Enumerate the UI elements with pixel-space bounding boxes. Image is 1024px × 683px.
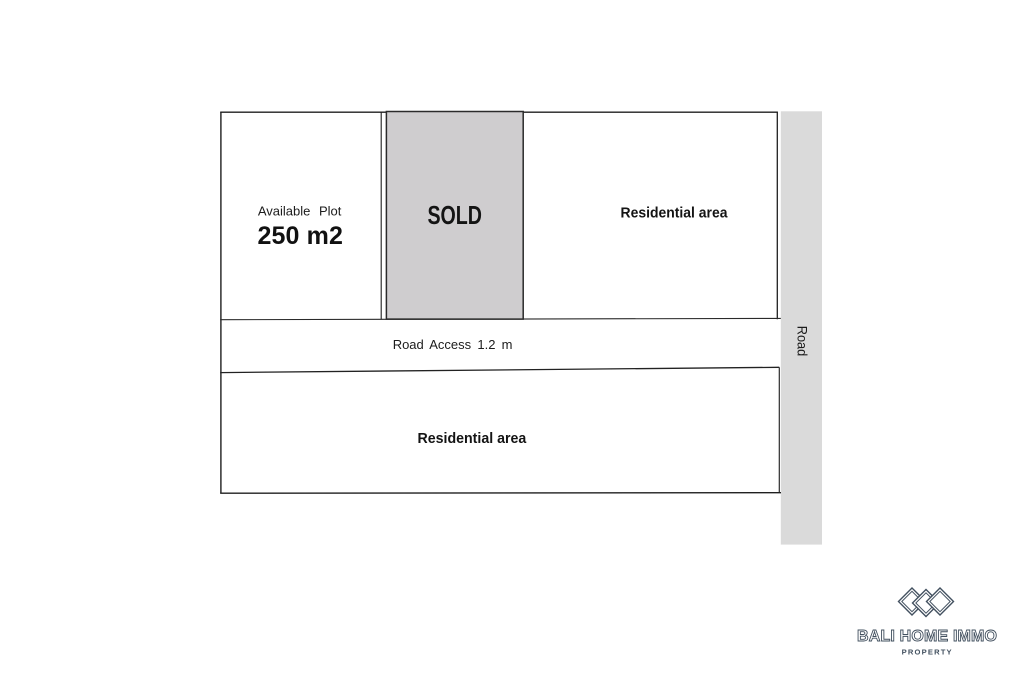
svg-text:Road Access 1.2 m: Road Access 1.2 m bbox=[393, 337, 513, 352]
svg-text:Residential area: Residential area bbox=[418, 430, 527, 447]
svg-text:Available Plot: Available Plot bbox=[258, 204, 342, 219]
svg-text:SOLD: SOLD bbox=[427, 202, 482, 230]
svg-text:Road: Road bbox=[795, 326, 811, 357]
svg-text:250 m2: 250 m2 bbox=[257, 222, 343, 250]
svg-text:BALI HOME IMMO: BALI HOME IMMO bbox=[857, 628, 997, 645]
svg-text:PROPERTY: PROPERTY bbox=[902, 648, 952, 657]
svg-text:Residential area: Residential area bbox=[621, 204, 729, 221]
